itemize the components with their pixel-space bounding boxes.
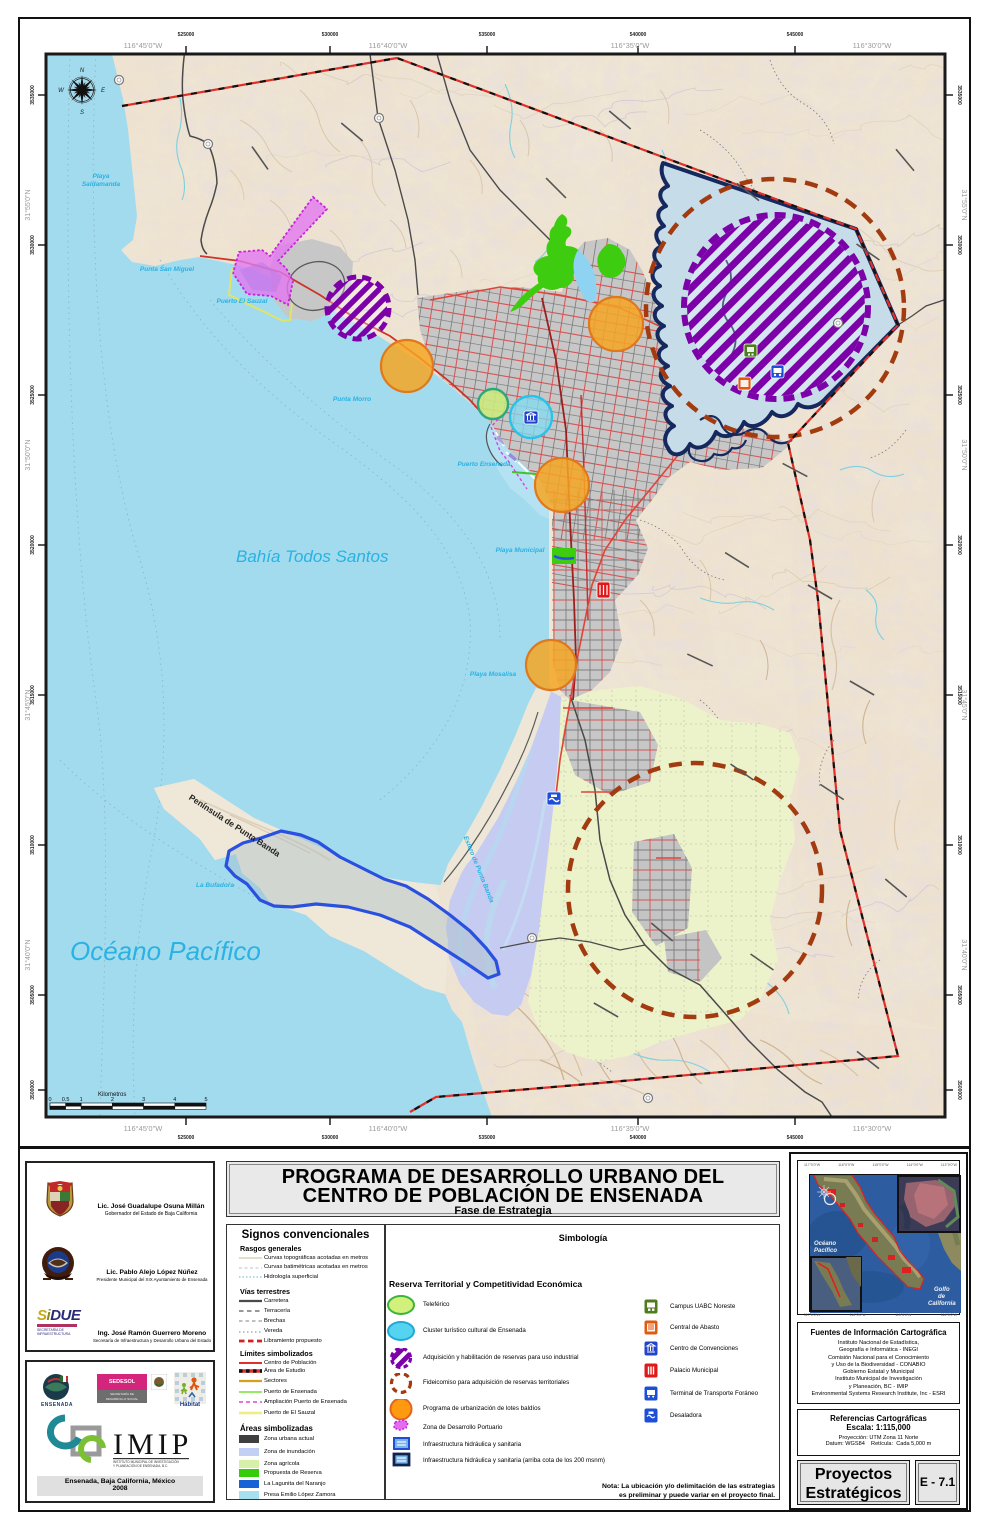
svg-text:545000: 545000 xyxy=(787,1135,804,1141)
svg-text:3525000: 3525000 xyxy=(956,385,962,405)
svg-text:2: 2 xyxy=(111,1097,114,1103)
svg-text:Playa Municipal: Playa Municipal xyxy=(496,547,545,554)
svg-text:31°50'0"N: 31°50'0"N xyxy=(960,439,968,470)
svg-text:116°30'0"W: 116°30'0"W xyxy=(853,1124,893,1133)
svg-text:116°35'0"W: 116°35'0"W xyxy=(611,1124,651,1133)
svg-text:31°45'0"N: 31°45'0"N xyxy=(24,689,32,720)
svg-text:S: S xyxy=(80,110,84,116)
svg-text:3500000: 3500000 xyxy=(956,1080,962,1100)
svg-text:0: 0 xyxy=(48,1097,51,1103)
svg-text:31°45'0"N: 31°45'0"N xyxy=(960,689,968,720)
svg-text:3535000: 3535000 xyxy=(30,85,36,105)
svg-text:116°45'0"W: 116°45'0"W xyxy=(124,41,164,50)
svg-text:31°55'0"N: 31°55'0"N xyxy=(960,189,968,220)
svg-text:Océano: Océano xyxy=(814,1241,836,1247)
svg-text:3530000: 3530000 xyxy=(956,235,962,255)
svg-text:Pacífico: Pacífico xyxy=(814,1248,837,1254)
svg-text:31°50'0"N: 31°50'0"N xyxy=(24,439,32,470)
svg-text:Puerto El Sauzal: Puerto El Sauzal xyxy=(217,298,268,305)
svg-text:116°40'0"W: 116°40'0"W xyxy=(369,41,409,50)
svg-text:5: 5 xyxy=(204,1097,207,1103)
svg-text:Saldamanda: Saldamanda xyxy=(82,181,121,188)
svg-text:535000: 535000 xyxy=(479,32,496,38)
svg-text:3510000: 3510000 xyxy=(30,835,36,855)
svg-text:116°35'0"W: 116°35'0"W xyxy=(611,41,651,50)
svg-text:de: de xyxy=(938,1294,946,1300)
svg-text:Playa: Playa xyxy=(93,173,110,180)
svg-text:3520000: 3520000 xyxy=(30,535,36,555)
svg-text:545000: 545000 xyxy=(787,32,804,38)
svg-text:Golfo: Golfo xyxy=(934,1287,950,1293)
svg-text:IMIP: IMIP xyxy=(113,1428,192,1461)
svg-text:31°40'0"N: 31°40'0"N xyxy=(960,939,968,970)
svg-text:3500000: 3500000 xyxy=(30,1080,36,1100)
svg-text:3530000: 3530000 xyxy=(30,235,36,255)
svg-text:116°45'0"W: 116°45'0"W xyxy=(124,1124,164,1133)
svg-text:3: 3 xyxy=(142,1097,145,1103)
svg-text:3535000: 3535000 xyxy=(956,85,962,105)
svg-text:3525000: 3525000 xyxy=(30,385,36,405)
svg-text:116°30'0"W: 116°30'0"W xyxy=(853,41,893,50)
svg-text:31°40'0"N: 31°40'0"N xyxy=(24,939,32,970)
svg-text:Y PLANEACIÓN DE ENSENADA, B.C.: Y PLANEACIÓN DE ENSENADA, B.C. xyxy=(113,1463,168,1468)
svg-text:0.5: 0.5 xyxy=(62,1097,70,1103)
svg-text:116°40'0"W: 116°40'0"W xyxy=(369,1124,409,1133)
svg-text:525000: 525000 xyxy=(178,32,195,38)
svg-text:California: California xyxy=(928,1301,956,1307)
svg-text:530000: 530000 xyxy=(322,1135,339,1141)
svg-text:Punta Morro: Punta Morro xyxy=(333,396,371,403)
svg-text:Océano Pacífico: Océano Pacífico xyxy=(70,936,261,966)
svg-text:Playa Mosalisa: Playa Mosalisa xyxy=(470,671,517,678)
svg-text:3520000: 3520000 xyxy=(956,535,962,555)
svg-text:N: N xyxy=(80,68,85,74)
svg-text:Bahía Todos Santos: Bahía Todos Santos xyxy=(236,547,389,566)
svg-text:525000: 525000 xyxy=(178,1135,195,1141)
svg-text:3505000: 3505000 xyxy=(30,985,36,1005)
svg-text:3505000: 3505000 xyxy=(956,985,962,1005)
svg-text:540000: 540000 xyxy=(630,32,647,38)
svg-text:1: 1 xyxy=(80,1097,83,1103)
svg-text:Punta San Miguel: Punta San Miguel xyxy=(140,266,194,273)
svg-text:530000: 530000 xyxy=(322,32,339,38)
svg-text:31°55'0"N: 31°55'0"N xyxy=(24,189,32,220)
svg-text:3510000: 3510000 xyxy=(956,835,962,855)
svg-text:535000: 535000 xyxy=(479,1135,496,1141)
svg-text:Puerto Ensenada: Puerto Ensenada xyxy=(457,461,510,468)
svg-text:La Bufadora: La Bufadora xyxy=(196,882,234,889)
svg-text:540000: 540000 xyxy=(630,1135,647,1141)
svg-text:4: 4 xyxy=(173,1097,176,1103)
